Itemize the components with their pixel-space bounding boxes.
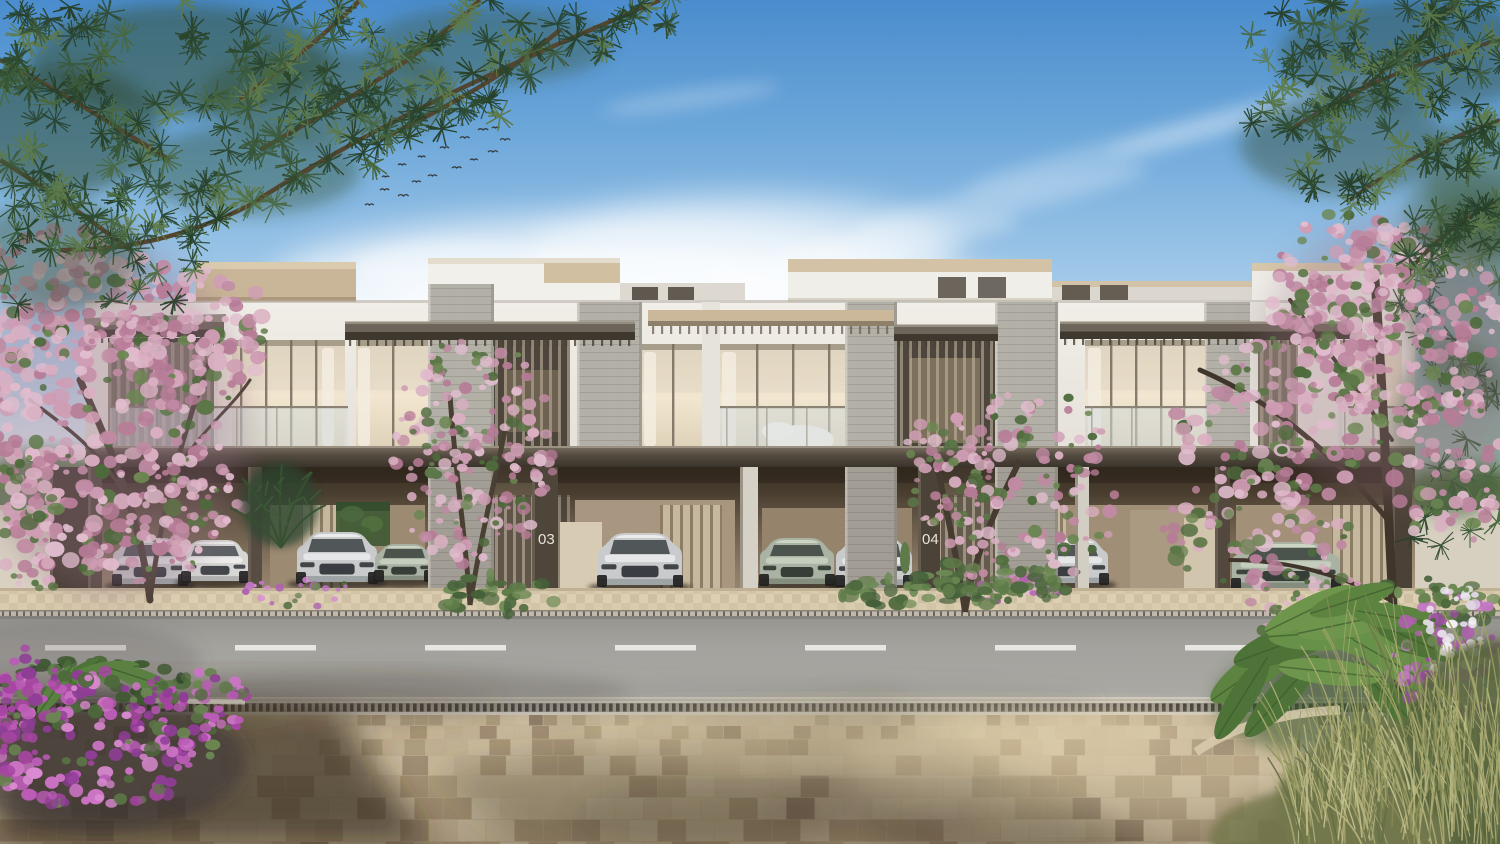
- svg-text:03: 03: [538, 531, 555, 548]
- svg-text:04: 04: [922, 531, 939, 548]
